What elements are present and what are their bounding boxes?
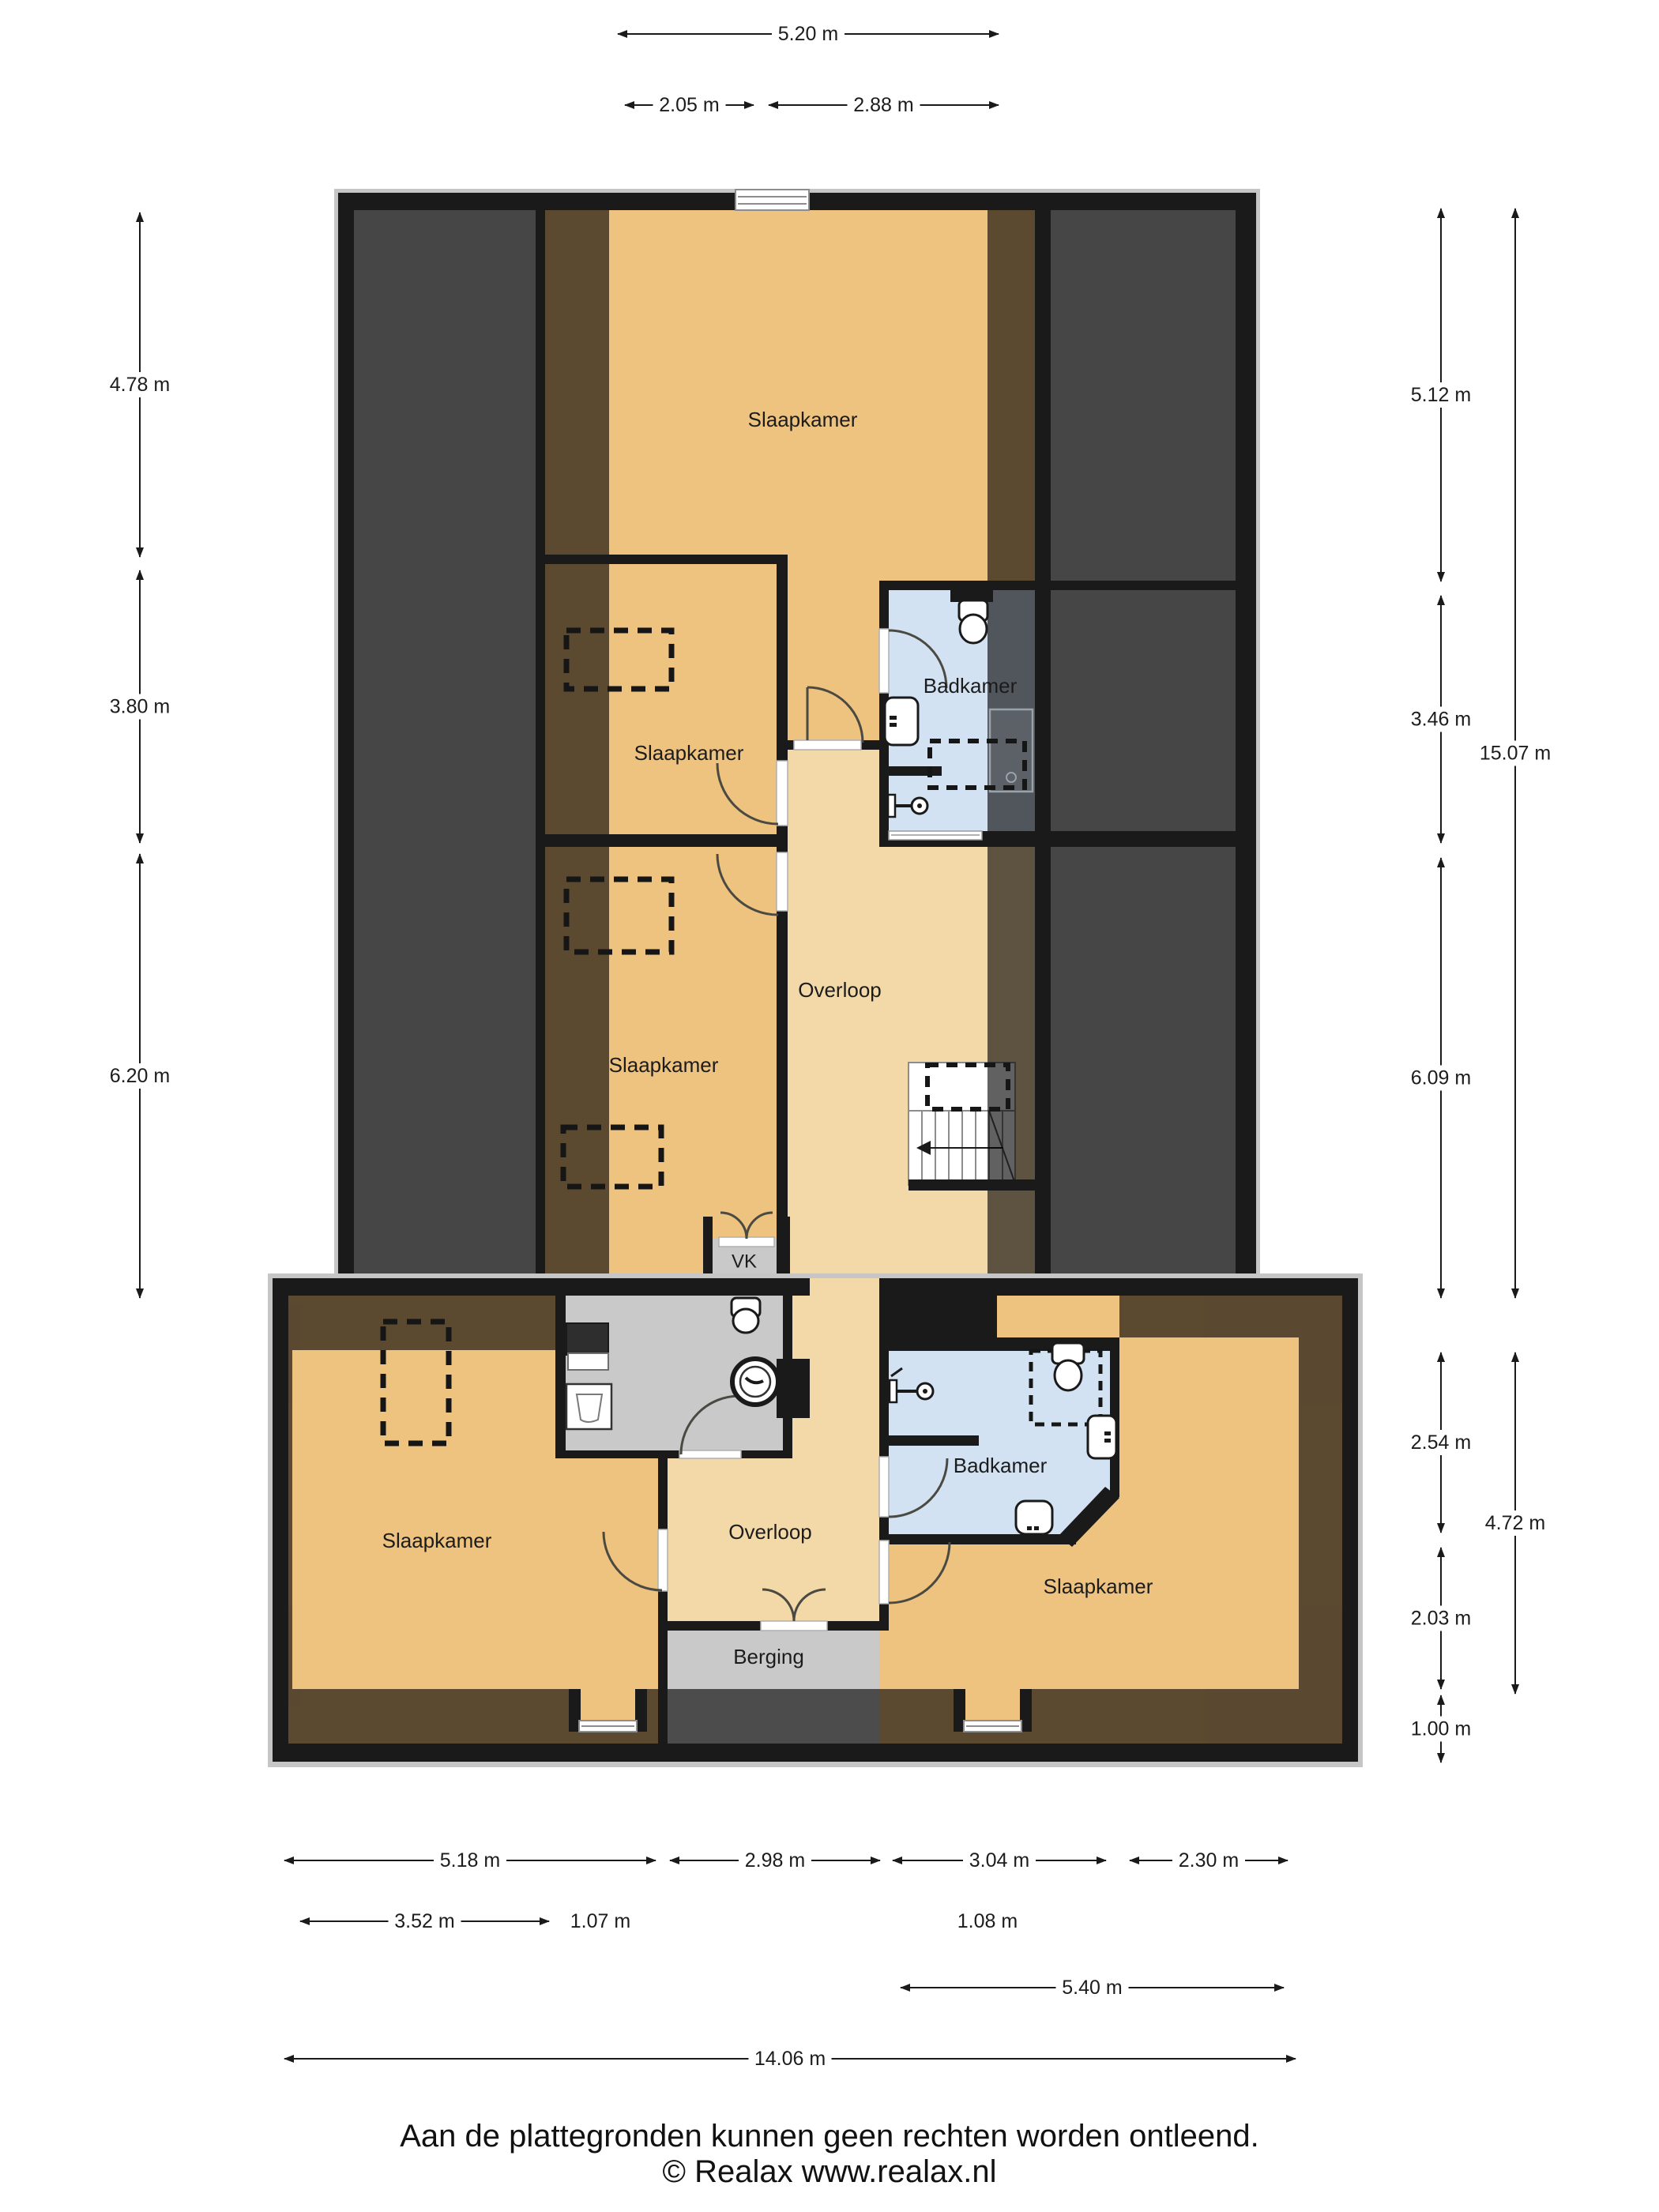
- boiler-icon: [732, 1359, 778, 1405]
- dimension: 4.72 m: [1479, 1352, 1552, 1694]
- dimension-label: 4.78 m: [110, 374, 170, 396]
- dormer-bay-right: [954, 1689, 1032, 1732]
- dimension: 3.80 m: [103, 570, 176, 843]
- dimension-label: 2.05 m: [659, 94, 719, 116]
- lower-floor-block: [268, 1273, 1363, 1767]
- dimension: 2.98 m: [670, 1848, 880, 1873]
- dimension-label: 3.46 m: [1411, 709, 1471, 731]
- dimension: 15.07 m: [1474, 209, 1557, 1298]
- dimension: 14.06 m: [284, 2046, 1296, 2071]
- room-label: Badkamer: [954, 1454, 1048, 1477]
- floorplan-drawing: SlaapkamerSlaapkamerBadkamerOverloopSlaa…: [0, 0, 1659, 2212]
- dimension-label: 2.98 m: [745, 1849, 805, 1872]
- window-top: [735, 190, 809, 210]
- dimension-label: 4.72 m: [1485, 1512, 1545, 1534]
- dimension-label: 5.40 m: [1062, 1977, 1122, 1999]
- toilet-icon: [732, 1298, 760, 1333]
- dimension-label: 6.09 m: [1411, 1067, 1471, 1089]
- room-label: VK: [732, 1251, 757, 1273]
- dimension: 3.46 m: [1405, 596, 1477, 843]
- floorplan-page: SlaapkamerSlaapkamerBadkamerOverloopSlaa…: [0, 0, 1659, 2212]
- dimension-label: 1.00 m: [1411, 1718, 1471, 1740]
- dimension: 4.78 m: [103, 213, 176, 557]
- dimension-label: 2.30 m: [1179, 1849, 1239, 1872]
- room-label: Badkamer: [924, 674, 1018, 698]
- dimension: 3.52 m: [300, 1909, 549, 1934]
- upper-floor-block: [334, 189, 1260, 1300]
- dimension-label: 6.20 m: [110, 1065, 170, 1087]
- dimension-label: 14.06 m: [754, 2048, 826, 2070]
- room-label: Slaapkamer: [382, 1529, 492, 1552]
- toilet-icon: [1052, 1343, 1084, 1390]
- dimension: 2.05 m: [625, 92, 754, 118]
- disclaimer-text: Aan de plattegronden kunnen geen rechten…: [0, 2119, 1659, 2154]
- dimension: 2.03 m: [1405, 1548, 1477, 1689]
- dimension-label: 2.88 m: [853, 94, 913, 116]
- dimension-label: 3.52 m: [394, 1910, 454, 1932]
- room-label: Slaapkamer: [634, 741, 744, 765]
- dimension-label: 5.12 m: [1411, 384, 1471, 406]
- washbasin-icon: [885, 698, 918, 745]
- dimension-label: 2.54 m: [1411, 1431, 1471, 1454]
- sink-icon: [566, 1384, 611, 1429]
- dimension-label: 5.18 m: [440, 1849, 500, 1872]
- toilet-icon: [959, 600, 987, 643]
- chimney-mass: [879, 1278, 997, 1351]
- corridor-gap: [810, 1278, 879, 1296]
- dimension: 6.09 m: [1405, 858, 1477, 1298]
- dimension: 1.08 m: [951, 1909, 1024, 1934]
- washbasin-icon: [1088, 1416, 1116, 1458]
- dimension-label: 1.07 m: [570, 1910, 630, 1932]
- dimension: 5.18 m: [284, 1848, 656, 1873]
- dimension-label: 15.07 m: [1480, 743, 1551, 765]
- landing-floor-upper: [787, 748, 879, 847]
- toilet-icon: [1016, 1501, 1052, 1534]
- dimension-label: 5.20 m: [778, 23, 838, 45]
- room-label: Slaapkamer: [609, 1053, 719, 1077]
- dimension: 5.12 m: [1405, 209, 1477, 581]
- room-label: Slaapkamer: [1044, 1574, 1153, 1598]
- dimension: 5.20 m: [618, 21, 999, 47]
- dimension: 6.20 m: [103, 854, 176, 1298]
- dimension-label: 2.03 m: [1411, 1608, 1471, 1630]
- dimension: 2.30 m: [1130, 1848, 1288, 1873]
- dimension-label: 1.08 m: [957, 1910, 1018, 1932]
- dimension: 3.04 m: [893, 1848, 1106, 1873]
- washing-machine-icon: [566, 1323, 608, 1370]
- window-bathroom-upper: [889, 831, 982, 840]
- void-left: [354, 210, 536, 1278]
- dimension: 5.40 m: [901, 1975, 1284, 2000]
- dimension: 1.00 m: [1405, 1695, 1477, 1762]
- dimension: 1.07 m: [564, 1909, 637, 1934]
- dimension: 2.54 m: [1405, 1352, 1477, 1533]
- room-label: Berging: [733, 1645, 804, 1668]
- room-label: Overloop: [798, 978, 882, 1002]
- duct-block: [777, 1359, 810, 1418]
- room-label: Slaapkamer: [748, 408, 858, 431]
- low-headroom-shade-left: [545, 210, 609, 1278]
- dormer-bay-left: [569, 1689, 647, 1732]
- dimension: 2.88 m: [769, 92, 999, 118]
- copyright-text: © Realax www.realax.nl: [0, 2154, 1659, 2190]
- room-label: Overloop: [728, 1520, 812, 1544]
- dimension-label: 3.80 m: [110, 696, 170, 718]
- dimension-label: 3.04 m: [969, 1849, 1029, 1872]
- void-right: [1051, 210, 1236, 1278]
